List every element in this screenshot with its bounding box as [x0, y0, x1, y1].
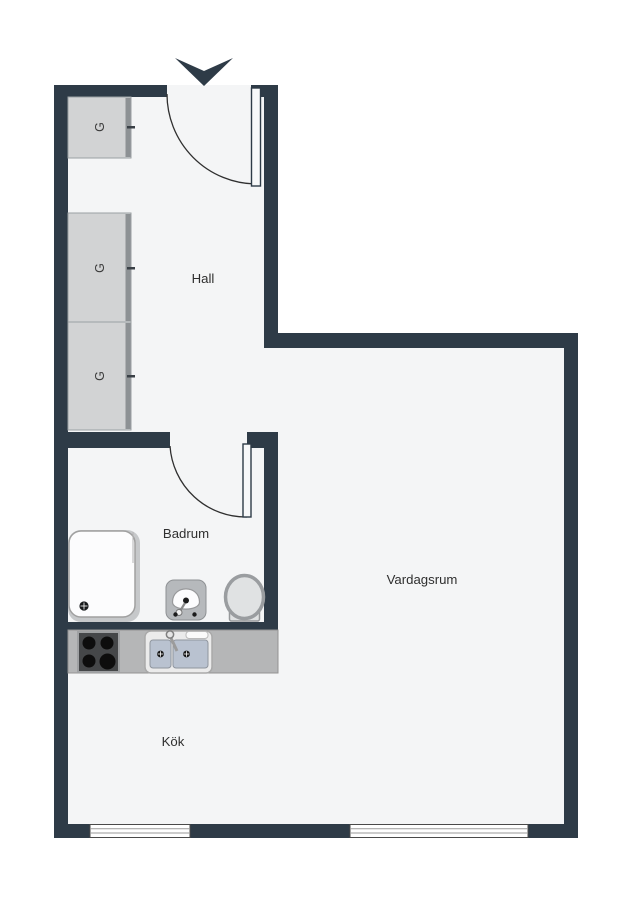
entry-door-leaf	[252, 88, 261, 186]
wardrobe-3-label: G	[93, 371, 107, 381]
burner	[83, 655, 96, 668]
wardrobe-1-handle-tick	[127, 126, 135, 129]
toilet-bowl	[226, 576, 264, 619]
room-label-kok: Kök	[162, 734, 185, 749]
kitchen-sink-tray	[186, 632, 208, 639]
wardrobe-1-label: G	[93, 122, 107, 132]
burner	[83, 637, 96, 650]
wardrobe-3-handle-tick	[127, 375, 135, 378]
shower-drain-icon	[79, 601, 88, 610]
wardrobes: G G G	[68, 97, 135, 430]
room-label-badrum: Badrum	[163, 526, 209, 541]
kitchen-sink-drain-icon	[157, 651, 164, 658]
wall-badrum-bottom	[54, 622, 278, 630]
wall-left	[54, 85, 68, 838]
bathroom-sink-dot-left	[173, 612, 177, 616]
bathroom-sink-drain-icon	[183, 598, 189, 604]
kitchen-counter	[68, 630, 278, 673]
wardrobe-2-label: G	[93, 263, 107, 273]
wall-badrum-right	[264, 432, 278, 630]
shower-tray	[69, 531, 135, 617]
kitchen-sink-basin-right	[173, 640, 208, 668]
window-vardagsrum	[350, 825, 528, 838]
stove	[78, 632, 119, 672]
wall-right	[564, 333, 578, 838]
floor-entry-opening	[167, 85, 251, 97]
bathroom-sink	[166, 580, 206, 620]
room-label-hall: Hall	[192, 271, 215, 286]
kitchen-sink	[145, 631, 212, 673]
floor-plan: G G G	[0, 0, 636, 900]
wall-badrum-top-left	[54, 432, 170, 448]
toilet	[226, 576, 264, 622]
badrum-door-leaf	[243, 444, 251, 517]
burner	[101, 637, 114, 650]
wall-top-left	[54, 85, 167, 97]
floor-west-column	[68, 97, 264, 824]
kitchen-sink-faucet-base	[166, 631, 173, 638]
room-label-vardagsrum: Vardagsrum	[387, 572, 458, 587]
wardrobe-2-handle-tick	[127, 267, 135, 270]
burner	[100, 654, 116, 670]
bathroom-sink-dot-right	[192, 612, 196, 616]
kitchen-sink-drain-icon	[183, 651, 190, 658]
wall-vardagsrum-top	[264, 333, 578, 348]
wall-hall-right	[264, 85, 278, 348]
window-kitchen	[90, 825, 190, 838]
shower	[68, 530, 140, 622]
